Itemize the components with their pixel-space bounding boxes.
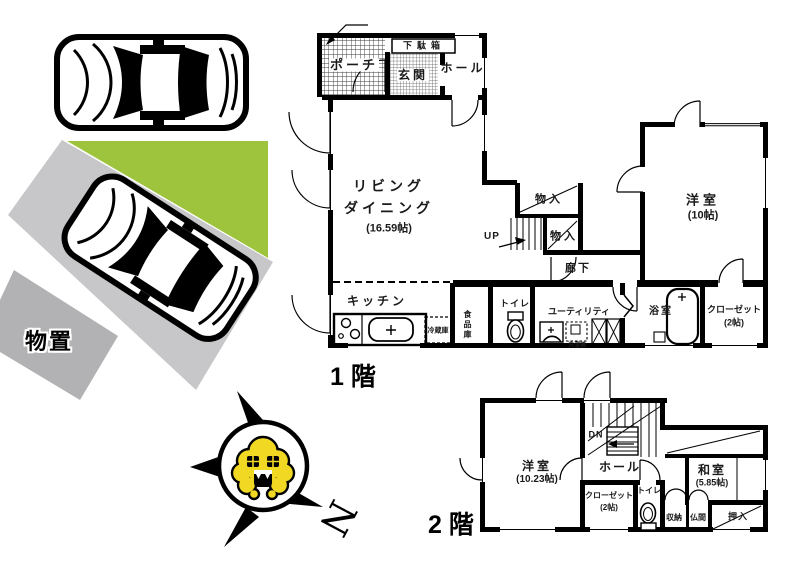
living-label-line1: リビング [353,179,425,193]
porch-label: ポーチ [329,59,379,72]
car-top-icon [57,37,246,128]
japanese-room-label: 和室 [698,464,726,476]
closet-2f-label: クローゼット [585,492,633,500]
western-room-2f-size: (10.23帖) [516,475,558,485]
living-label-line2: ダイニング [344,201,434,215]
stairs-up-label: UP [484,232,500,242]
closet-1f-label: クローゼット [707,306,761,315]
toilet-1f-label: トイレ [500,300,530,309]
stairs-1f [499,218,541,250]
hall-2f-label: ホール [599,461,641,473]
floor2-title: 2階 [428,505,481,541]
toilet-2f-icon [641,503,657,530]
living-size-label: (16.59帖) [366,224,412,235]
western-room-1f-size: (10帖) [688,211,719,222]
fridge-label: 冷蔵庫 [428,328,449,335]
floorplan-page: 物置 N ポーチ 下駄箱 玄関 ホール リビング ダイニング (16.59帖) … [0,0,800,565]
utility-fixtures [540,319,620,345]
closet-a-label: 物入 [535,195,563,206]
toilet-2f-label: トイレ [637,487,661,495]
bath-label: 浴室 [649,307,673,317]
shoe-cabinet-label: 下駄箱 [403,42,445,51]
utility-label: ユーティリティ [548,308,610,317]
shed-label: 物置 [25,324,73,356]
western-room-2f-label: 洋室 [522,460,552,472]
pantry-label: 食品庫 [463,310,471,340]
plan-graphics [0,0,800,565]
kitchen-counter [334,314,426,345]
western-room-1f-label: 洋室 [686,194,720,207]
washer-label: 洗濯機 [568,343,586,349]
toilet-1f-icon [508,312,524,342]
hall-1f-label: ホール [440,62,485,74]
entrance-label: 玄関 [397,69,429,81]
floor1-title: 1階 [330,357,383,393]
oshiire-label: 押入 [728,513,748,522]
japanese-room-size: (5.85帖) [696,479,729,488]
storage-label: 収納 [666,514,682,522]
stairs-down-label: DN [589,431,604,440]
kitchen-label: キッチン [347,295,407,307]
butsuma-label: 仏間 [690,514,706,522]
corridor-label: 廊下 [565,264,591,275]
closet-1f-size: (2帖) [724,319,744,328]
mascot-mouth [254,470,272,487]
compass-rose [190,391,323,547]
closet-2f-size: (2帖) [600,504,618,512]
closet-b-label: 物入 [550,232,578,243]
